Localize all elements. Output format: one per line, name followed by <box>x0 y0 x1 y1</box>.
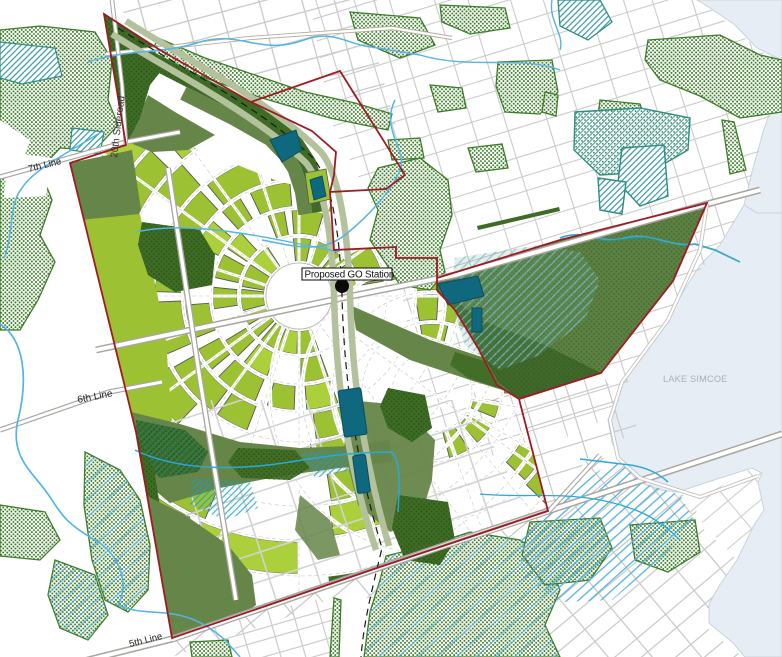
svg-text:Proposed GO Station: Proposed GO Station <box>305 270 395 281</box>
svg-text:LAKE SIMCOE: LAKE SIMCOE <box>663 374 728 384</box>
